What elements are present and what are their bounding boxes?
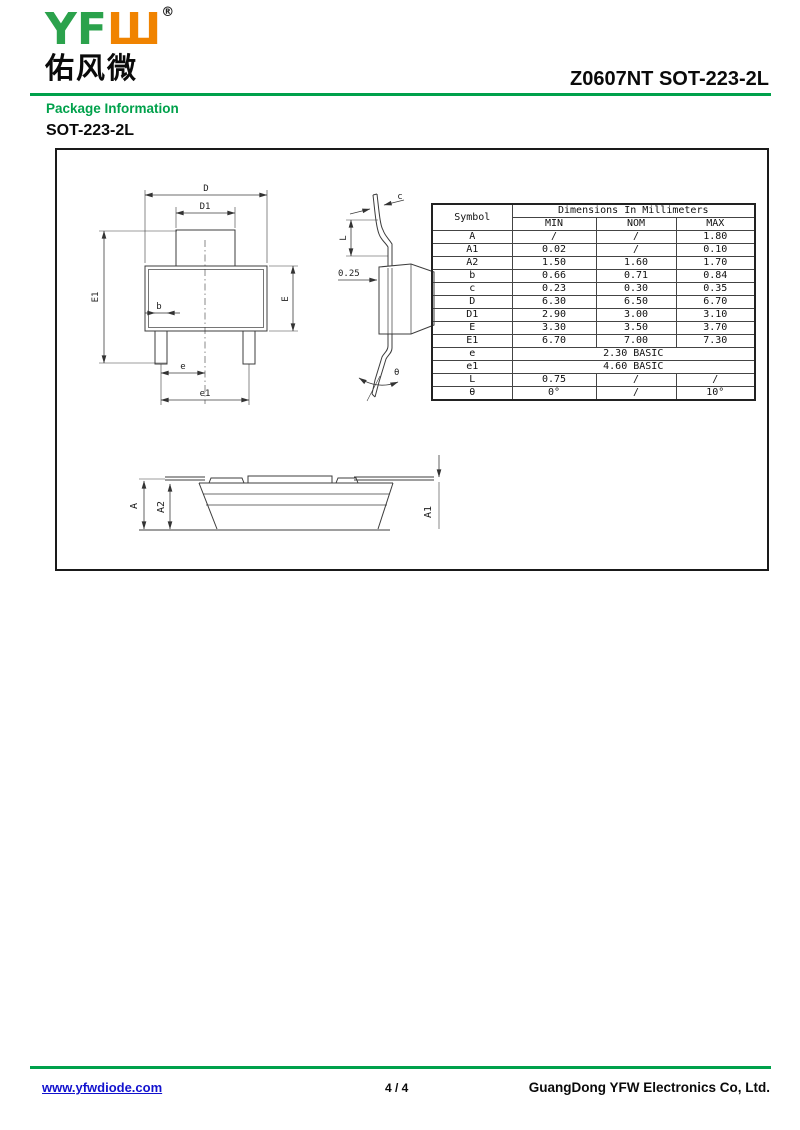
side-body-shape [379,264,434,334]
min-value-cell: 0° [512,387,596,401]
min-value-cell: 6.70 [512,335,596,348]
min-column-header: MIN [512,218,596,231]
nom-value-cell: / [596,387,676,401]
table-row: A10.02/0.10 [432,244,755,257]
dim-label-025: 0.25 [338,269,360,279]
lead-shoulder-left [209,478,244,483]
document-title: Z0607NT SOT-223-2L [570,68,769,91]
profile-body-shape [199,483,393,529]
max-value-cell: 7.30 [676,335,755,348]
min-value-cell: 0.66 [512,270,596,283]
tab-shape [176,230,235,266]
lead-right-shape [243,331,255,364]
profile-view-drawing: A A2 A1 [129,455,439,530]
max-value-cell: 0.10 [676,244,755,257]
dim-label-theta: θ [394,368,399,378]
nom-value-cell: 3.50 [596,322,676,335]
footer-rule [30,1066,771,1069]
symbol-cell: θ [432,387,512,401]
side-view-drawing: c L 0.25 θ [338,192,434,401]
header-rule [30,93,771,96]
table-row: D12.903.003.10 [432,309,755,322]
dim-label-D: D [203,184,208,194]
dimension-c [350,200,404,214]
max-value-cell: 10° [676,387,755,401]
table-row: A//1.80 [432,231,755,244]
max-value-cell: / [676,374,755,387]
symbol-cell: D [432,296,512,309]
dimension-theta [359,376,398,401]
max-value-cell: 3.10 [676,309,755,322]
table-row: e14.60 BASIC [432,361,755,374]
symbol-cell: D1 [432,309,512,322]
table-row: A21.501.601.70 [432,257,755,270]
symbol-cell: L [432,374,512,387]
company-logo: YFШ® 佑风微 [45,6,174,83]
symbol-cell: E [432,322,512,335]
symbol-cell: A1 [432,244,512,257]
nom-value-cell: 1.60 [596,257,676,270]
center-tab-profile [248,476,332,483]
table-row: b0.660.710.84 [432,270,755,283]
max-value-cell: 0.35 [676,283,755,296]
dimensions-table-body: A//1.80A10.02/0.10A21.501.601.70b0.660.7… [432,231,755,401]
section-label: Package Information [46,101,179,116]
package-drawing-frame: D D1 E1 E b e e1 [55,148,769,571]
lead-left-shape [155,331,167,364]
min-value-cell: / [512,231,596,244]
table-title: Dimensions In Millimeters [512,204,755,218]
nom-value-cell: / [596,231,676,244]
dim-label-A2: A2 [156,501,167,513]
dim-label-L: L [339,235,349,240]
front-view-drawing: D D1 E1 E b e e1 [91,184,298,405]
registered-trademark-icon: ® [161,5,174,20]
min-value-cell: 6.30 [512,296,596,309]
symbol-cell: e1 [432,361,512,374]
basic-value-cell: 2.30 BASIC [512,348,755,361]
symbol-column-header: Symbol [432,204,512,231]
table-row: E3.303.503.70 [432,322,755,335]
table-row: D6.306.506.70 [432,296,755,309]
bottom-lead-edge [375,334,392,397]
dim-label-b: b [156,302,161,312]
logo-w-glyph: Ш [107,4,161,55]
max-value-cell: 1.70 [676,257,755,270]
dim-label-E: E [281,296,291,301]
symbol-cell: E1 [432,335,512,348]
min-value-cell: 3.30 [512,322,596,335]
dim-label-A: A [129,503,140,509]
symbol-cell: A [432,231,512,244]
min-value-cell: 0.02 [512,244,596,257]
table-row: L0.75// [432,374,755,387]
min-value-cell: 2.90 [512,309,596,322]
dim-label-e: e [180,362,185,372]
dim-label-A1: A1 [423,506,434,518]
company-name: GuangDong YFW Electronics Co, Ltd. [529,1080,770,1095]
max-column-header: MAX [676,218,755,231]
max-value-cell: 6.70 [676,296,755,309]
symbol-cell: A2 [432,257,512,270]
min-value-cell: 0.75 [512,374,596,387]
symbol-cell: c [432,283,512,296]
max-value-cell: 1.80 [676,231,755,244]
table-row: e2.30 BASIC [432,348,755,361]
dim-label-E1: E1 [91,292,101,303]
page-number: 4 / 4 [385,1081,408,1095]
nom-value-cell: 7.00 [596,335,676,348]
nom-column-header: NOM [596,218,676,231]
basic-value-cell: 4.60 BASIC [512,361,755,374]
nom-value-cell: 0.30 [596,283,676,296]
max-value-cell: 3.70 [676,322,755,335]
top-lead-edge [373,195,388,268]
body-shape [145,266,267,331]
datasheet-page: { "header": { "logo": { "yf": "YF", "w":… [0,0,800,1130]
package-name-heading: SOT-223-2L [46,122,134,140]
logo-chinese-name: 佑风微 [45,54,174,83]
nom-value-cell: / [596,374,676,387]
table-row: c0.230.300.35 [432,283,755,296]
table-row: E16.707.007.30 [432,335,755,348]
nom-value-cell: 3.00 [596,309,676,322]
dim-label-e1: e1 [200,389,211,399]
nom-value-cell: 0.71 [596,270,676,283]
dim-label-c: c [397,192,402,202]
table-row: θ0°/10° [432,387,755,401]
logo-yf-text: YF [45,4,107,55]
min-value-cell: 1.50 [512,257,596,270]
symbol-cell: e [432,348,512,361]
min-value-cell: 0.23 [512,283,596,296]
symbol-cell: b [432,270,512,283]
nom-value-cell: 6.50 [596,296,676,309]
website-link[interactable]: www.yfwdiode.com [42,1080,162,1095]
nom-value-cell: / [596,244,676,257]
max-value-cell: 0.84 [676,270,755,283]
dimensions-table: Symbol Dimensions In Millimeters MIN NOM… [431,203,756,401]
dim-label-D1: D1 [200,202,211,212]
logo-wordmark: YFШ® [45,6,174,52]
